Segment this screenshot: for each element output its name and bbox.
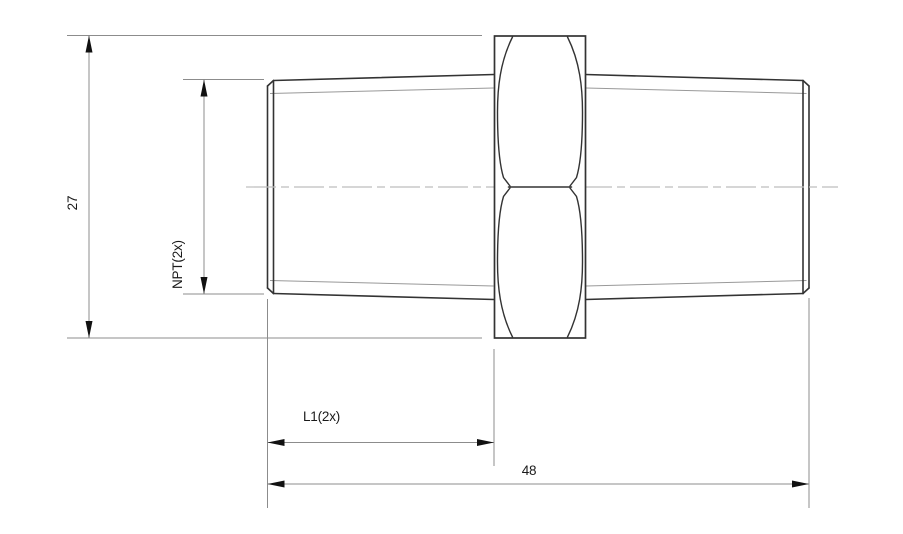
dimension-arrowhead-48-left xyxy=(268,481,285,488)
hex-nipple-drawing: 27 NPT(2x) L1(2x) 48 xyxy=(0,0,903,534)
dimension-label-27: 27 xyxy=(65,196,80,211)
thread-minor-line-top-right xyxy=(586,88,807,94)
dimension-label-npt: NPT(2x) xyxy=(170,240,185,289)
dimension-arrowhead-l1-right xyxy=(477,439,494,446)
dimension-label-l1: L1(2x) xyxy=(303,409,340,424)
taper-edge-top-right xyxy=(586,75,804,81)
dimension-arrowhead-npt-up xyxy=(201,80,208,97)
dimension-arrowhead-l1-left xyxy=(268,439,285,446)
dimension-arrowhead-48-right xyxy=(792,481,809,488)
taper-edge-bottom-right xyxy=(586,294,804,300)
thread-minor-line-bottom-left xyxy=(270,281,494,287)
chamfer-corner-bottom-left xyxy=(268,288,274,294)
cad-drawing-canvas: 27 NPT(2x) L1(2x) 48 xyxy=(0,0,903,534)
dimension-arrowhead-npt-down xyxy=(201,277,208,294)
hex-section xyxy=(495,36,586,338)
thread-minor-line-bottom-right xyxy=(586,281,807,287)
dimension-thread-length: L1(2x) xyxy=(268,299,495,508)
taper-edge-top-left xyxy=(274,75,495,81)
chamfer-corner-top-right xyxy=(803,81,809,87)
taper-edge-bottom-left xyxy=(274,294,495,300)
dimension-arrowhead-27-up xyxy=(86,36,93,53)
chamfer-corner-top-left xyxy=(268,81,274,87)
chamfer-corner-bottom-right xyxy=(803,288,809,294)
thread-minor-line-top-left xyxy=(270,88,494,94)
dimension-arrowhead-27-down xyxy=(86,321,93,338)
dimension-label-48: 48 xyxy=(522,463,537,478)
